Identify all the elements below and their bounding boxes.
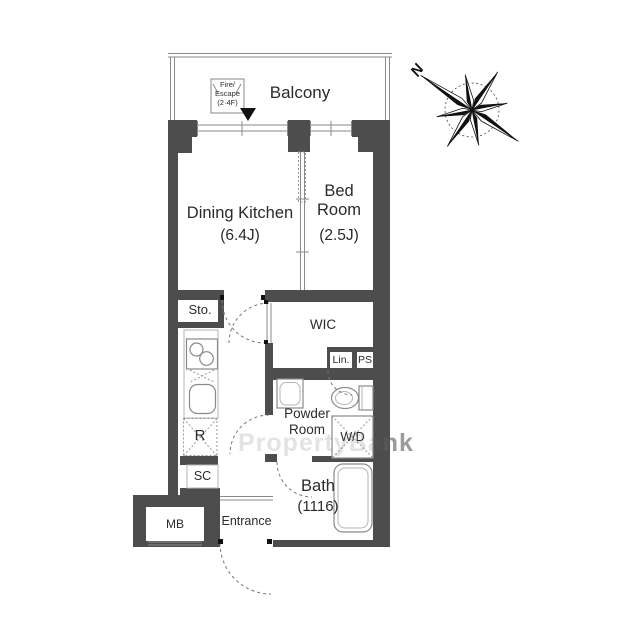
bath-label: Bath [288, 477, 348, 496]
window-dk [197, 121, 288, 136]
compass-rose-icon [396, 37, 544, 178]
entrance-step [220, 497, 273, 501]
bed-room-label: Bed Room [307, 182, 371, 221]
escape-hatch-arrow-icon [240, 108, 256, 121]
refrigerator-label: R [183, 427, 217, 445]
wic-label: WIC [298, 317, 348, 333]
watermark: PropertyBank [238, 429, 414, 458]
linen-label: Lin. [329, 354, 353, 366]
watermark-part2: nk [383, 429, 414, 457]
door-hinges [218, 295, 272, 544]
balcony-label: Balcony [250, 83, 350, 103]
stove-icon [187, 339, 218, 369]
entrance-label: Entrance [220, 514, 273, 529]
fire-escape-label: Fire/ Escape (2·4F) [211, 81, 244, 108]
washbasin-icon [277, 379, 303, 408]
fire-escape-line3: (2·4F) [211, 99, 244, 108]
bath-size: (1116) [288, 498, 348, 516]
dining-kitchen-size: (6.4J) [175, 227, 305, 245]
storage-label: Sto. [180, 302, 220, 317]
shoe-closet-label: SC [187, 469, 218, 484]
bed-room-size: (2.5J) [307, 227, 371, 245]
wic-door-leaf [267, 303, 271, 343]
watermark-part1: PropertyBa [238, 429, 383, 457]
floor-plan-image: Balcony Fire/ Escape (2·4F) Dining Kitch… [0, 0, 640, 640]
window-bedroom [310, 121, 352, 136]
kitchen-counter [184, 330, 218, 418]
meter-box-label: MB [146, 517, 204, 531]
dining-kitchen-label: Dining Kitchen [175, 204, 305, 223]
sink-icon [190, 385, 216, 414]
pipe-space-label: PS [356, 354, 374, 366]
